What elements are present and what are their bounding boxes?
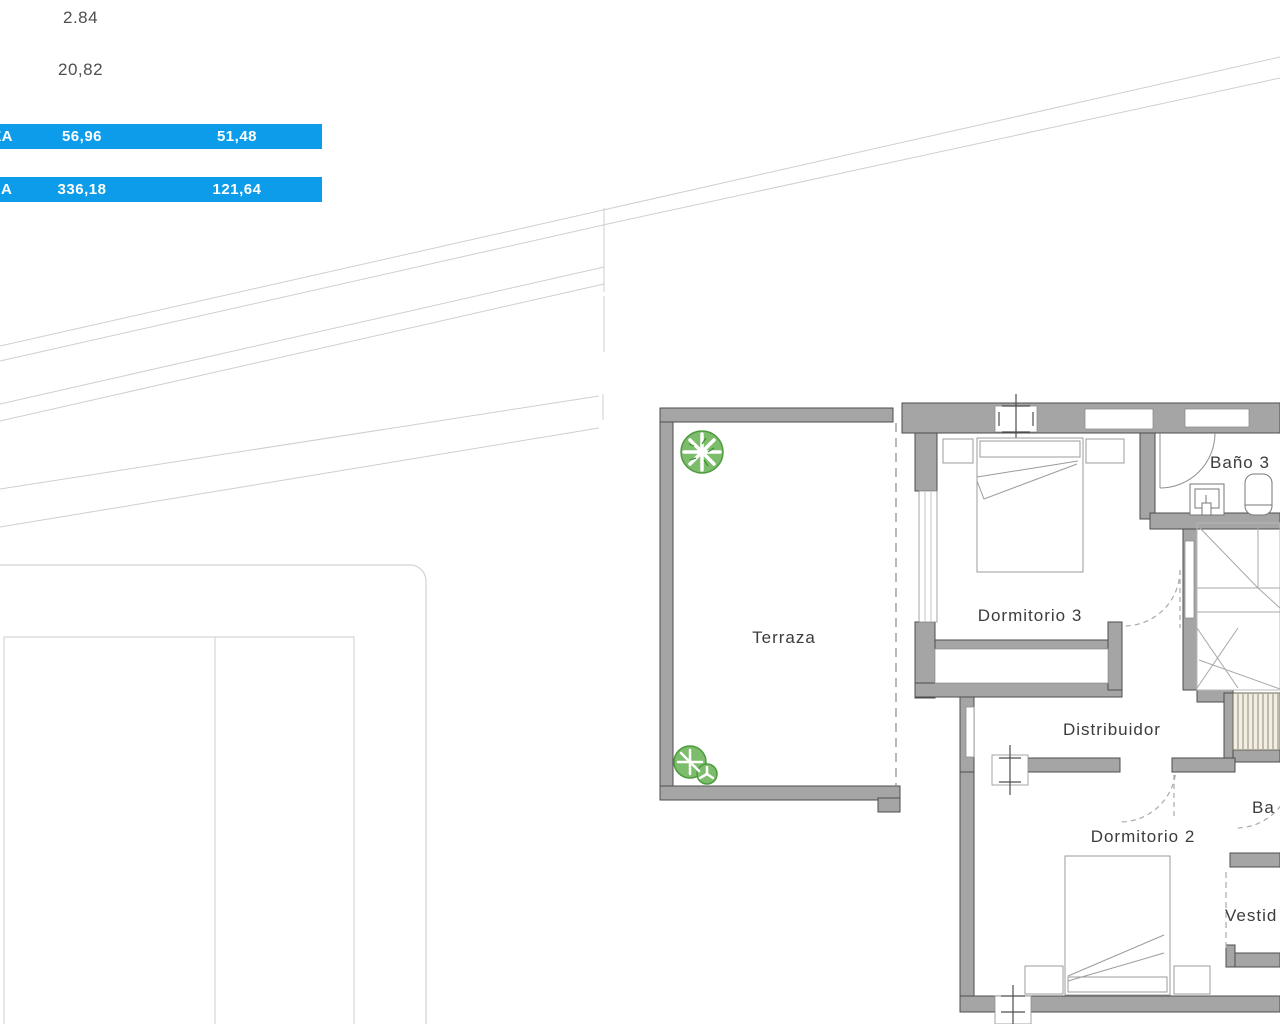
- window-marker: [995, 394, 1037, 444]
- bush-plant-icon: [674, 746, 717, 784]
- nightstand: [1174, 966, 1210, 994]
- room-label-dormitorio2: Dormitorio 2: [1091, 827, 1196, 846]
- dorm3-door-jamb-wall: [1108, 622, 1122, 690]
- toilet: [1245, 474, 1272, 515]
- stairs-hatched-flight: [1233, 693, 1280, 750]
- sink: [1190, 484, 1224, 515]
- wardrobe-box: [935, 649, 1108, 683]
- room-label-vestidor: Vestid: [1225, 906, 1277, 925]
- window-marker: [992, 745, 1028, 795]
- terraza-west-wall: [660, 408, 673, 800]
- terraza-north-wall: [660, 408, 893, 422]
- nightstand: [943, 439, 973, 463]
- nightstand: [1086, 439, 1124, 463]
- bano3-door-arc: [1160, 433, 1215, 488]
- floor-plan-drawing: Terraza Dormitorio 3 Baño 3 Distribuidor…: [0, 0, 1280, 1024]
- bano3-west-wall: [1140, 433, 1155, 519]
- wardrobe-strip: [935, 640, 1108, 649]
- bed-dorm3: [977, 438, 1083, 572]
- terraza-south-wall-step: [878, 798, 900, 812]
- window-opening: [1085, 409, 1153, 429]
- room-label-dormitorio3: Dormitorio 3: [978, 606, 1083, 625]
- room-label-terraza: Terraza: [752, 628, 816, 647]
- dorm3-door-arc: [1124, 570, 1180, 628]
- dorm3-west-wall: [915, 433, 937, 491]
- dorm2-north-wall: [1172, 758, 1235, 772]
- stair-hatch-south-wall: [1233, 750, 1280, 762]
- room-label-bano3: Baño 3: [1210, 453, 1270, 472]
- dorm2-door-arc: [1120, 766, 1176, 822]
- dorm3-west-window: [919, 491, 937, 622]
- distribuidor-west-window: [966, 707, 974, 757]
- vestidor-jamb-wall: [1226, 945, 1235, 967]
- stair-wall-niche: [1185, 541, 1194, 618]
- floor-plan-page: 2.84 20,82 ZA 56,96 51,48 A 336,18 121,6…: [0, 0, 1280, 1024]
- stairs: [1197, 523, 1280, 690]
- terraza-south-wall: [660, 786, 900, 800]
- nightstand: [1025, 966, 1063, 994]
- room-label-distribuidor: Distribuidor: [1063, 720, 1161, 739]
- dorm3-south-wall: [915, 683, 1122, 697]
- vestidor-north-wall: [1235, 953, 1280, 967]
- window-opening: [1185, 409, 1249, 427]
- dorm2-west-wall: [960, 772, 974, 1012]
- lower-terrace-outlines: [0, 565, 426, 1024]
- bed-dorm2: [1065, 856, 1170, 995]
- bano2-south-wall: [1230, 853, 1280, 867]
- tree-plant-icon: [681, 431, 723, 473]
- room-label-bano2: Ba: [1252, 798, 1275, 817]
